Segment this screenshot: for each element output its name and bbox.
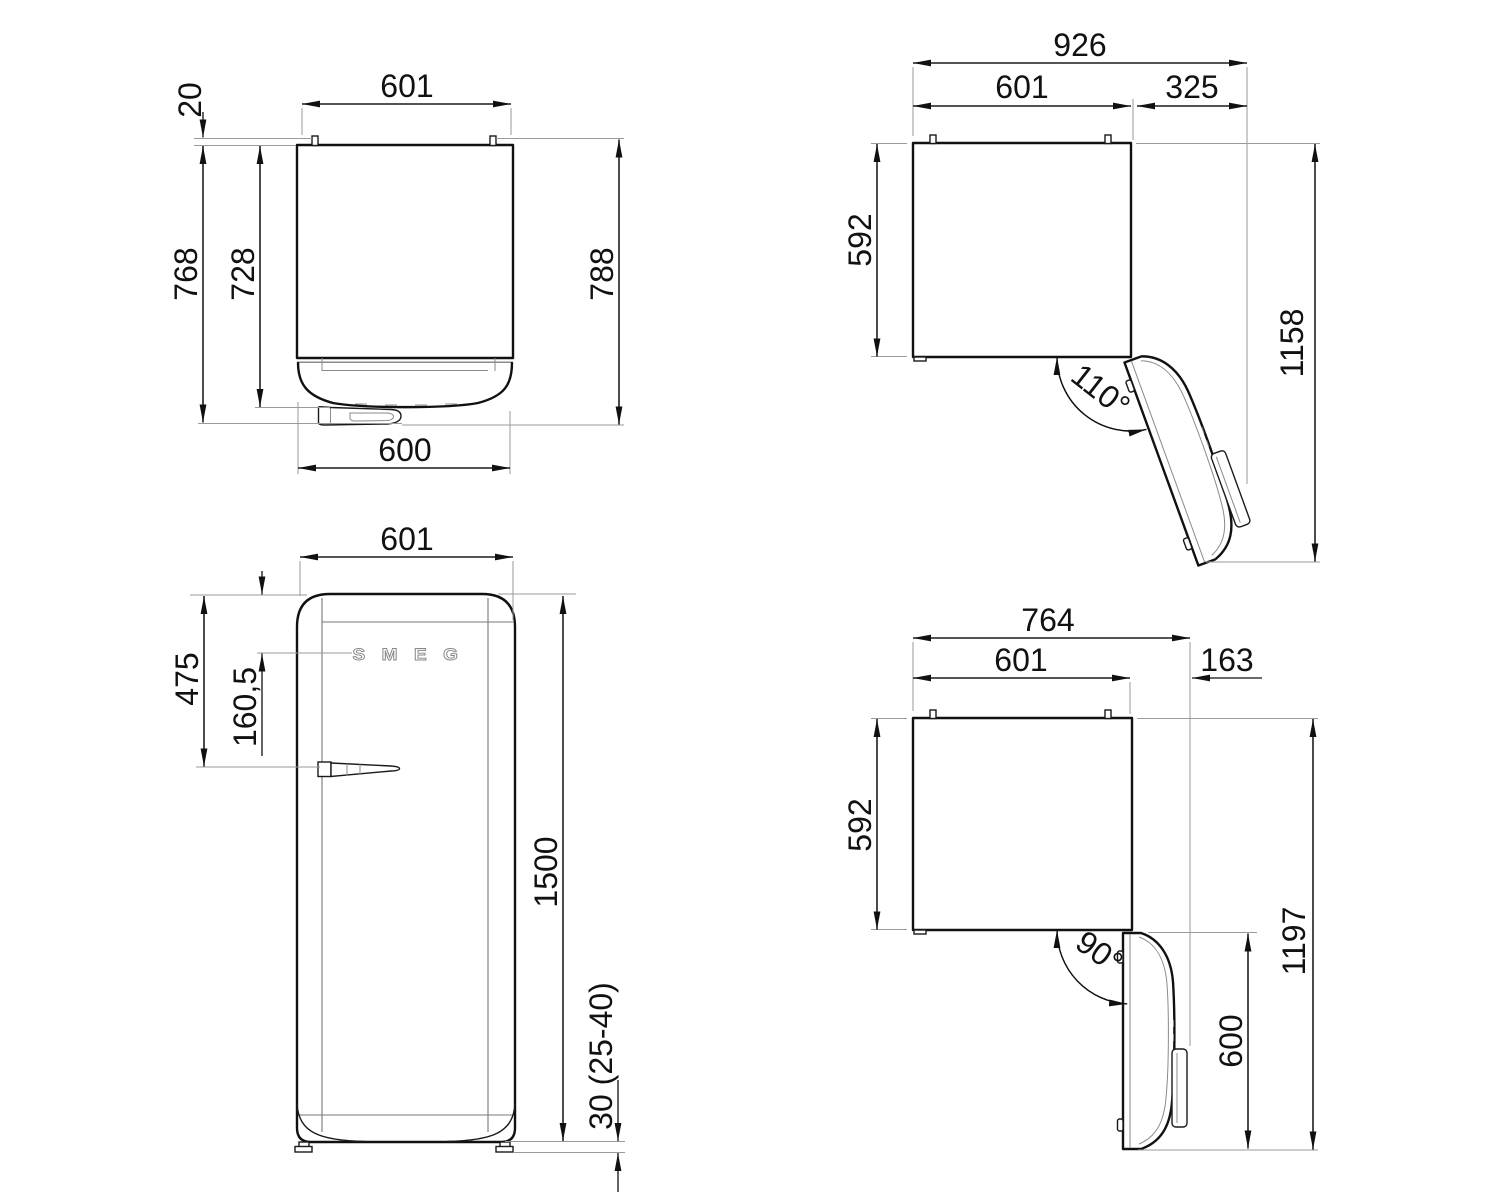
dim-label-top-to-logo: 160,5 (227, 667, 263, 747)
dim-label-total-width: 764 (1021, 602, 1074, 638)
hinge-right (490, 136, 496, 146)
dim-door-width-600: 600 (298, 432, 510, 468)
dim-label-cabinet-width: 601 (995, 69, 1048, 105)
dim-open-depth-1158: 1158 (1274, 144, 1315, 562)
dim-top-width-601: 601 (302, 68, 511, 104)
dim-label-front-width: 601 (380, 521, 433, 557)
dim-depth-788: 788 (584, 140, 620, 425)
dim-hinge-gap-20: 20 (172, 82, 208, 137)
dim-handle-475: 475 (169, 596, 205, 767)
hinge-left (930, 710, 936, 719)
dim-label-open-depth: 1197 (1276, 907, 1312, 976)
cabinet-top-outline (913, 718, 1132, 930)
dim-label-height: 1500 (528, 836, 564, 907)
dim-label-cabinet-depth: 592 (842, 798, 878, 851)
cabinet-top-outline (297, 145, 513, 358)
dim-depth-728: 728 (225, 146, 261, 407)
dim-label-clearance: 325 (1165, 69, 1218, 105)
dim-open-depth-1197: 1197 (1276, 719, 1313, 1150)
dim-label-top-width: 601 (380, 68, 433, 104)
dimension-drawing-page: 601 20 768 728 788 600 (0, 0, 1500, 1200)
dim-label-feet-height: 30 (25-40) (583, 982, 619, 1130)
cabinet-top-outline (913, 143, 1131, 357)
dim-total-width-764: 764 (913, 602, 1190, 638)
dim-label-open-depth: 1158 (1274, 309, 1310, 378)
dim-label-door-width: 600 (1213, 1014, 1249, 1067)
dim-label-top-to-handle: 475 (169, 652, 205, 705)
smeg-logo: S M E G (353, 645, 464, 664)
dim-depth-592: 592 (842, 144, 878, 357)
view-front: S M E G 601 475 160,5 (169, 521, 625, 1192)
door-bulge-top-view (298, 363, 512, 408)
foot-left (295, 1142, 312, 1152)
foot-mark (914, 357, 926, 361)
dim-label-door-width: 600 (378, 432, 431, 468)
dim-label-total-depth: 788 (584, 247, 620, 300)
dim-door-width-600: 600 (1213, 934, 1249, 1149)
dim-label-depth-handle: 768 (168, 247, 204, 300)
hinge-left (930, 135, 936, 144)
foot-mark (914, 930, 926, 934)
smeg-fridge-dimension-drawing: 601 20 768 728 788 600 (0, 0, 1500, 1200)
dim-front-width-601: 601 (300, 521, 513, 557)
view-top-open-110: 110° 926 601 325 592 (842, 27, 1320, 567)
dim-depth-768: 768 (168, 146, 204, 423)
view-top-closed: 601 20 768 728 788 600 (168, 68, 624, 474)
hinge-left (312, 136, 318, 146)
dim-height-1500: 1500 (528, 596, 564, 1141)
dim-label-door-angle: 90° (1069, 923, 1129, 981)
dim-clearance-325: 325 (1137, 69, 1247, 106)
dim-cabinet-width-601: 601 (913, 69, 1131, 106)
dim-cabinet-width-601: 601 (913, 642, 1130, 678)
foot-right (496, 1142, 513, 1152)
dim-logo-160-5: 160,5 (227, 571, 263, 756)
dim-label-total-width: 926 (1053, 27, 1106, 63)
dim-label-clearance: 163 (1200, 642, 1253, 678)
door-swing-arc-90: 90° (1057, 923, 1130, 1004)
fridge-front-outline (297, 594, 515, 1142)
dim-label-body-depth: 728 (225, 247, 261, 300)
dim-label-cabinet-depth: 592 (842, 213, 878, 266)
dim-label-hinge-gap: 20 (172, 82, 208, 118)
view-top-open-90: 90° 764 601 163 592 11 (842, 602, 1318, 1150)
dim-clearance-163: 163 (1192, 642, 1262, 678)
dim-depth-592: 592 (842, 719, 878, 930)
dim-label-cabinet-width: 601 (994, 642, 1047, 678)
dim-total-width-926: 926 (913, 27, 1247, 63)
hinge-right (1105, 135, 1111, 144)
hinge-right (1105, 710, 1111, 719)
dim-feet-30: 30 (25-40) (583, 982, 619, 1192)
